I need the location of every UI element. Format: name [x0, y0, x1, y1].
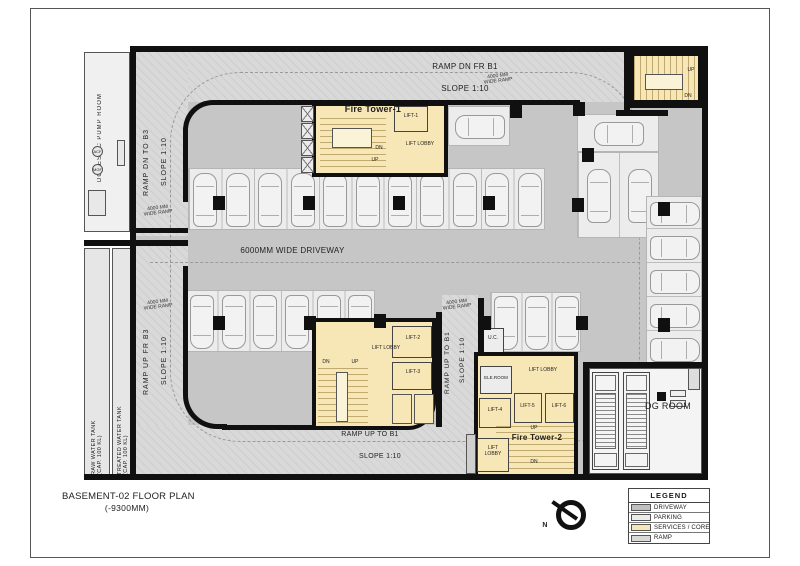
wall-segment	[84, 240, 188, 246]
legend-label: RAMP	[654, 535, 672, 541]
plumbing-shaft	[117, 140, 125, 166]
structural-column	[573, 102, 585, 116]
dg-room-label: DG ROOM	[636, 402, 700, 412]
slope-label-vertical: SLOPE 1:10	[459, 322, 466, 397]
car	[525, 296, 549, 350]
north-label: N	[539, 522, 551, 530]
shaft-box	[301, 157, 314, 173]
ramp-up-to-b1-label-bottom: RAMP UP TO B1	[325, 431, 415, 439]
core-center-landing	[336, 372, 348, 422]
shaft-box	[301, 106, 314, 122]
car	[650, 236, 700, 260]
service-box	[414, 394, 434, 424]
ft2-up-label: UP	[527, 426, 541, 432]
car	[455, 115, 505, 139]
lift-2-room	[392, 326, 432, 358]
legend-swatch	[631, 535, 651, 542]
legend-swatch	[631, 514, 651, 521]
car	[650, 270, 700, 294]
legend-row: RAMP	[629, 533, 709, 543]
car	[594, 122, 644, 146]
shaft-box	[301, 123, 314, 139]
car	[253, 295, 277, 349]
car	[356, 173, 380, 227]
ft1-up-label: UP	[368, 158, 382, 164]
structural-column	[303, 196, 315, 210]
car	[518, 173, 542, 227]
lift-3-room	[392, 362, 432, 390]
slope-label-top: SLOPE 1:10	[400, 85, 530, 94]
ft2-dn-label: DN	[527, 460, 541, 466]
legend-title: LEGEND	[629, 489, 709, 503]
ramp-dn-fr-b1-label: RAMP DN FR B1	[395, 63, 535, 72]
wall-segment	[583, 362, 589, 476]
fire-tower-2-label: Fire Tower-2	[498, 434, 576, 443]
ft1-dn-label: DN	[372, 146, 386, 152]
lift-lobby-1-label: LIFT LOBBY	[400, 142, 440, 148]
structural-column	[479, 316, 491, 330]
car	[222, 295, 246, 349]
lift-5-label: LIFT-5	[513, 404, 542, 410]
wall-segment	[616, 110, 668, 116]
tr-stair-dn-label: DN	[681, 94, 695, 100]
core-dn-label: DN	[319, 360, 333, 366]
parking-stalls-island-horiz	[577, 114, 659, 152]
floor-plan-sheet: DOMESTIC PUMP ROOM ACF MGF RAW WATER TAN…	[0, 0, 800, 566]
ft2-lift-lobby-label: LIFT LOBBY	[514, 368, 572, 374]
core-lift-lobby-label: LIFT LOBBY	[366, 346, 406, 352]
structural-column	[576, 316, 588, 330]
service-box	[392, 394, 412, 424]
car	[323, 173, 347, 227]
raw-water-tank-cap: (CAP. 100 KL)	[97, 249, 103, 475]
dg-box	[670, 390, 686, 397]
structural-column	[582, 148, 594, 162]
structural-column	[510, 104, 522, 118]
fire-tower-1-landing	[332, 128, 372, 148]
slope-label-left-upper: SLOPE 1:10	[161, 122, 168, 202]
pump-equipment	[88, 190, 106, 216]
structural-column	[304, 316, 316, 330]
lift-3-label: LIFT-3	[394, 370, 432, 376]
car	[650, 338, 700, 362]
wall-segment	[702, 46, 708, 480]
uc-label: U.C.	[483, 336, 503, 342]
structural-column	[658, 318, 670, 332]
wall-segment	[222, 425, 312, 430]
parking-stalls-single-stall	[448, 106, 510, 146]
wall-segment	[583, 362, 704, 368]
plan-level: (-9300MM)	[62, 504, 192, 513]
wall-segment	[130, 46, 708, 52]
ramp-up-fr-b3-label: RAMP UP FR B3	[143, 312, 150, 412]
legend-label: PARKING	[654, 515, 682, 521]
legend-label: SERVICES / CORE	[654, 525, 710, 531]
slope-label-left-lower: SLOPE 1:10	[161, 318, 168, 403]
ft2-lower-lobby-label: LIFT LOBBY	[479, 446, 507, 457]
wall-segment	[183, 136, 188, 202]
car	[420, 173, 444, 227]
lift-2-label: LIFT-2	[394, 336, 432, 342]
wall-segment	[183, 266, 188, 390]
legend: LEGEND DRIVEWAYPARKINGSERVICES / CORERAM…	[628, 488, 710, 544]
slope-label-bottom: SLOPE 1:10	[340, 453, 420, 461]
drive-guide-centerline	[150, 262, 640, 263]
car	[190, 295, 214, 349]
dg-generator-1	[592, 372, 619, 470]
car	[258, 173, 282, 227]
lift-1-label: LIFT-1	[396, 114, 426, 120]
core-up-label: UP	[348, 360, 362, 366]
car	[453, 173, 477, 227]
legend-row: DRIVEWAY	[629, 503, 709, 513]
stair-top-right-landing	[645, 74, 683, 90]
tr-stair-up-label: UP	[684, 68, 698, 74]
dg-generator-2	[623, 372, 650, 470]
wall-segment	[136, 228, 188, 233]
ramp-up-to-b1-label-vertical: RAMP UP TO B1	[444, 318, 451, 408]
lift-6-label: LIFT-6	[544, 404, 574, 410]
structural-column	[213, 316, 225, 330]
pump-acf: ACF	[92, 146, 103, 157]
wall-segment	[130, 46, 136, 480]
driveway-label: 6000MM WIDE DRIVEWAY	[230, 247, 355, 256]
ele-room-label: ELE.ROOM	[481, 376, 511, 381]
legend-row: SERVICES / CORE	[629, 523, 709, 533]
lift-4-label: LIFT-4	[480, 408, 510, 414]
legend-rows: DRIVEWAYPARKINGSERVICES / CORERAMP	[629, 503, 709, 543]
car	[226, 173, 250, 227]
structural-column	[483, 196, 495, 210]
ramp-dn-to-b3-label: RAMP DN TO B3	[143, 112, 150, 212]
structural-column	[374, 314, 386, 328]
dg-louver	[688, 368, 700, 390]
structural-column	[658, 202, 670, 216]
pump-mgf: MGF	[92, 164, 103, 175]
structural-column	[393, 196, 405, 210]
structural-column	[213, 196, 225, 210]
shaft-box	[301, 140, 314, 156]
plan-title: BASEMENT-02 FLOOR PLAN	[62, 492, 262, 502]
structural-column	[572, 198, 584, 212]
treated-water-tank-cap: (CAP. 100 KL)	[123, 249, 129, 475]
wall-segment	[84, 474, 708, 480]
legend-swatch	[631, 504, 651, 511]
legend-row: PARKING	[629, 513, 709, 523]
dg-panel	[657, 392, 666, 401]
legend-swatch	[631, 524, 651, 531]
car	[587, 169, 611, 223]
raw-water-tank: RAW WATER TANK (CAP. 100 KL)	[84, 248, 110, 476]
wall-segment	[436, 312, 442, 427]
parking-stalls-right-edge	[646, 196, 702, 366]
legend-label: DRIVEWAY	[654, 505, 687, 511]
wall-segment	[624, 102, 704, 108]
shaft-strip	[466, 434, 476, 474]
